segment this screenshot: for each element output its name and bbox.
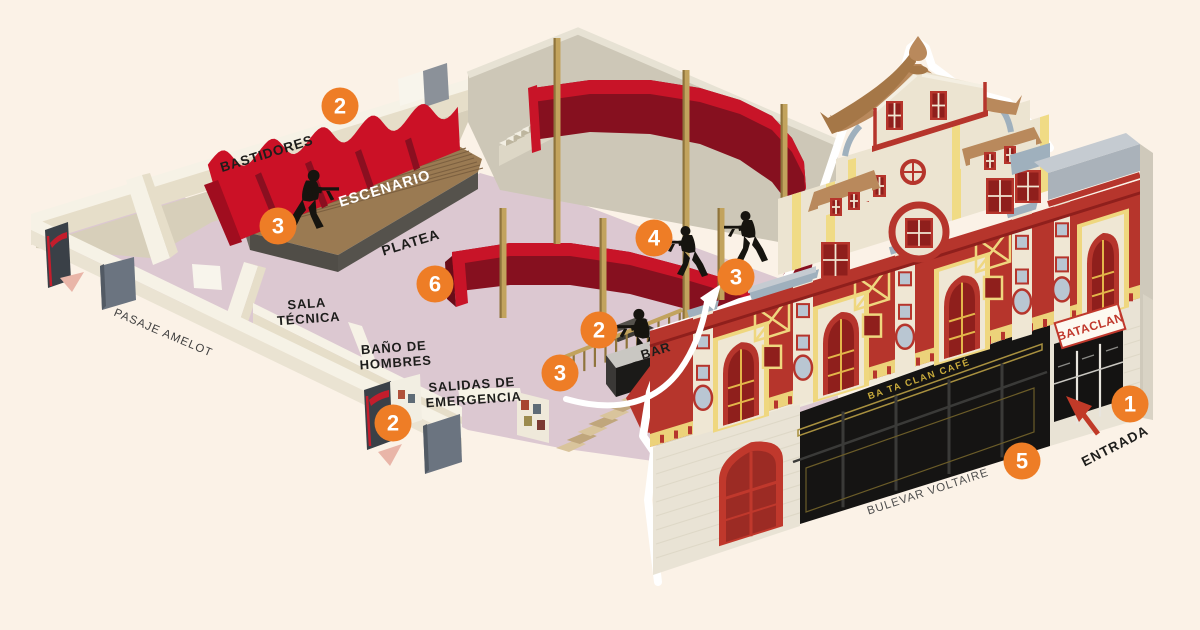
svg-text:6: 6 xyxy=(429,272,441,297)
svg-text:3: 3 xyxy=(730,265,742,290)
svg-text:3: 3 xyxy=(554,361,566,386)
svg-text:3: 3 xyxy=(272,214,284,239)
svg-text:2: 2 xyxy=(593,318,605,343)
svg-text:2: 2 xyxy=(387,411,399,436)
svg-text:5: 5 xyxy=(1016,449,1028,474)
svg-text:2: 2 xyxy=(334,94,346,119)
svg-text:4: 4 xyxy=(648,226,661,251)
svg-text:1: 1 xyxy=(1124,392,1136,417)
